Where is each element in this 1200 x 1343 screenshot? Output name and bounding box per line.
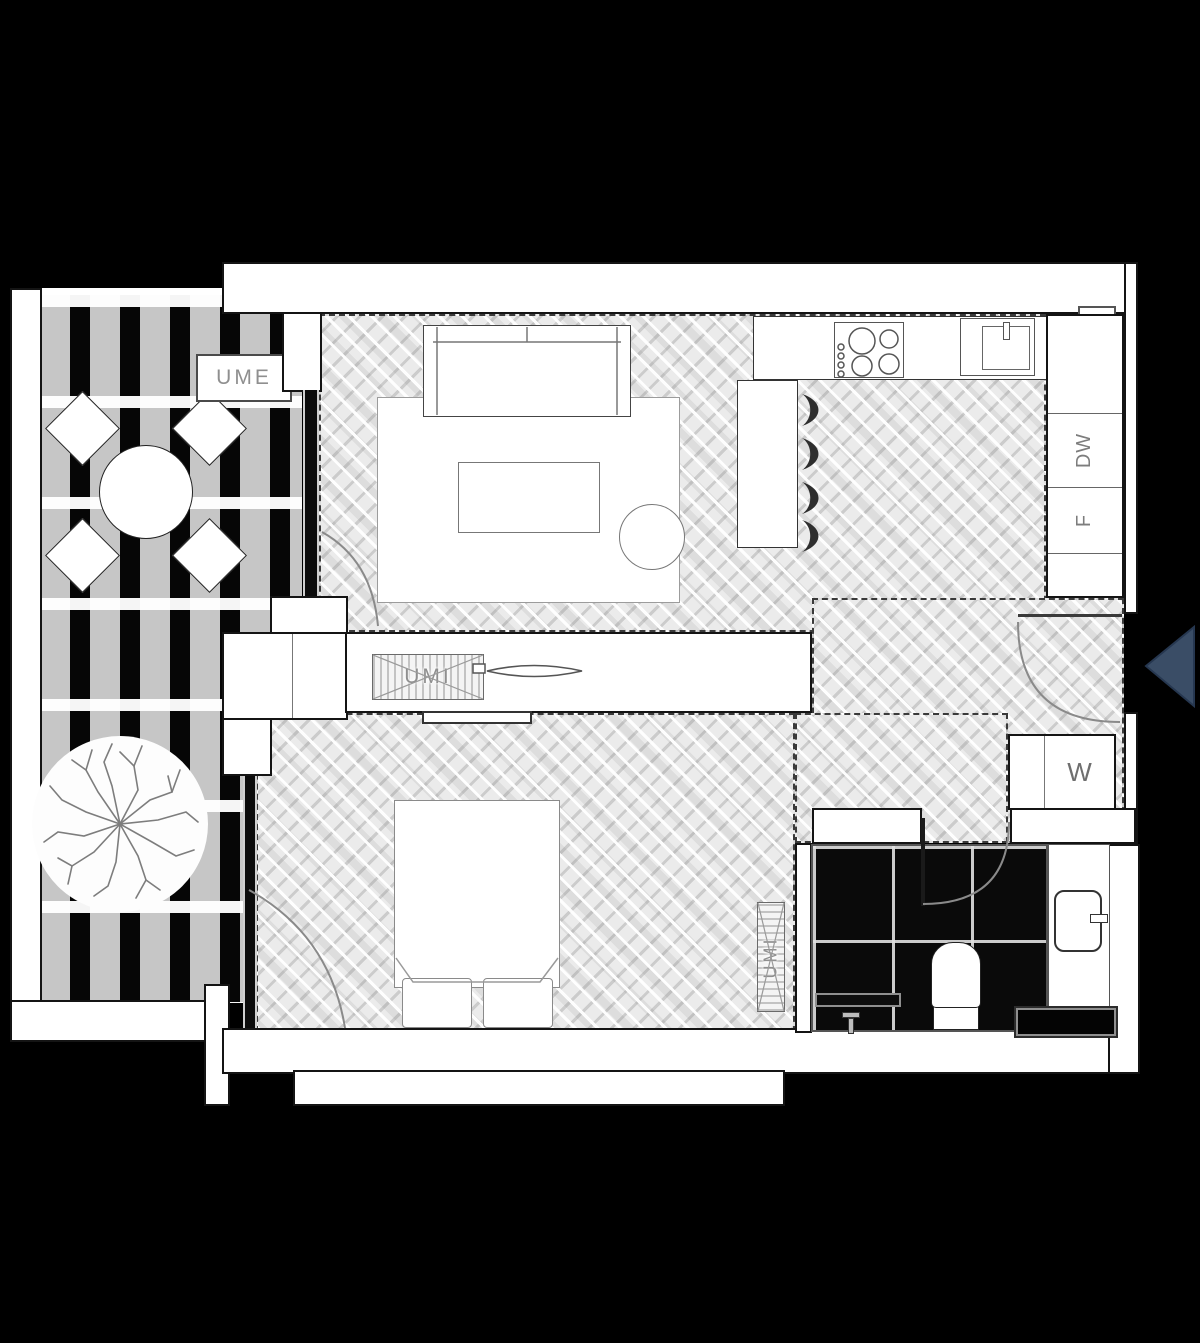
bedroom-balcony-glazing xyxy=(243,776,257,1038)
wall-top xyxy=(222,262,1135,314)
wall-bottom xyxy=(222,1028,1140,1074)
shower-mixer-handle xyxy=(848,1018,854,1034)
balcony-dining-table xyxy=(99,445,193,539)
dishwasher-cabinet: DW xyxy=(1046,413,1124,487)
entry-door-header xyxy=(1018,614,1122,617)
closet-divider-line xyxy=(292,634,293,718)
ume-label: UME xyxy=(216,366,272,390)
toilet-bowl xyxy=(931,942,981,1008)
pillow xyxy=(402,978,472,1028)
wall-bottom-step xyxy=(293,1070,785,1106)
bed xyxy=(394,800,560,988)
coffee-table xyxy=(458,462,600,533)
bathroom-shaft-cabinet: UMI xyxy=(757,902,785,1012)
tv-bedroom xyxy=(422,711,532,724)
balcony-door-jamb xyxy=(282,312,322,392)
kitchen-peninsula xyxy=(737,380,798,548)
fridge-label: F xyxy=(1074,513,1097,526)
closet-upper-block xyxy=(270,596,348,634)
balcony-left-wall xyxy=(10,288,42,1042)
bathroom-top-wall-right xyxy=(1010,808,1136,844)
bath-niche xyxy=(1016,1008,1116,1036)
entry-arrow-icon xyxy=(1146,627,1194,706)
wall-right-upper xyxy=(1124,262,1138,614)
dishwasher-label: DW xyxy=(1073,432,1096,467)
umi-shaft-label: UMI xyxy=(761,936,782,978)
bathroom-left-wall xyxy=(795,843,812,1033)
floor-plan: UME DW F UMI xyxy=(0,0,1200,1343)
fridge-cabinet: F xyxy=(1046,487,1124,553)
bathroom-top-wall-left xyxy=(812,808,922,844)
umi-label: UMI xyxy=(404,665,452,689)
cabinet-line xyxy=(1048,553,1122,554)
lounge-chair xyxy=(619,504,685,570)
ume-storage-cabinet: UME xyxy=(196,354,292,402)
washer-cell: W xyxy=(1044,734,1116,810)
living-balcony-glazing xyxy=(303,390,319,630)
bathroom-door-leaf xyxy=(921,818,925,906)
cooktop xyxy=(834,322,904,378)
shower-drain xyxy=(815,993,901,1007)
wall-right-column xyxy=(1108,844,1140,1074)
pillow xyxy=(483,978,553,1028)
washer-label: W xyxy=(1067,757,1093,788)
closet-block xyxy=(222,632,348,720)
bathroom-faucet xyxy=(1090,914,1108,923)
sofa xyxy=(423,325,631,417)
tree-canopy xyxy=(32,736,208,912)
kitchen-faucet xyxy=(1003,322,1010,340)
balcony-bottom-wall xyxy=(10,1000,222,1042)
umi-storage-cabinet: UMI xyxy=(372,654,484,700)
closet-lower-block xyxy=(222,718,272,776)
